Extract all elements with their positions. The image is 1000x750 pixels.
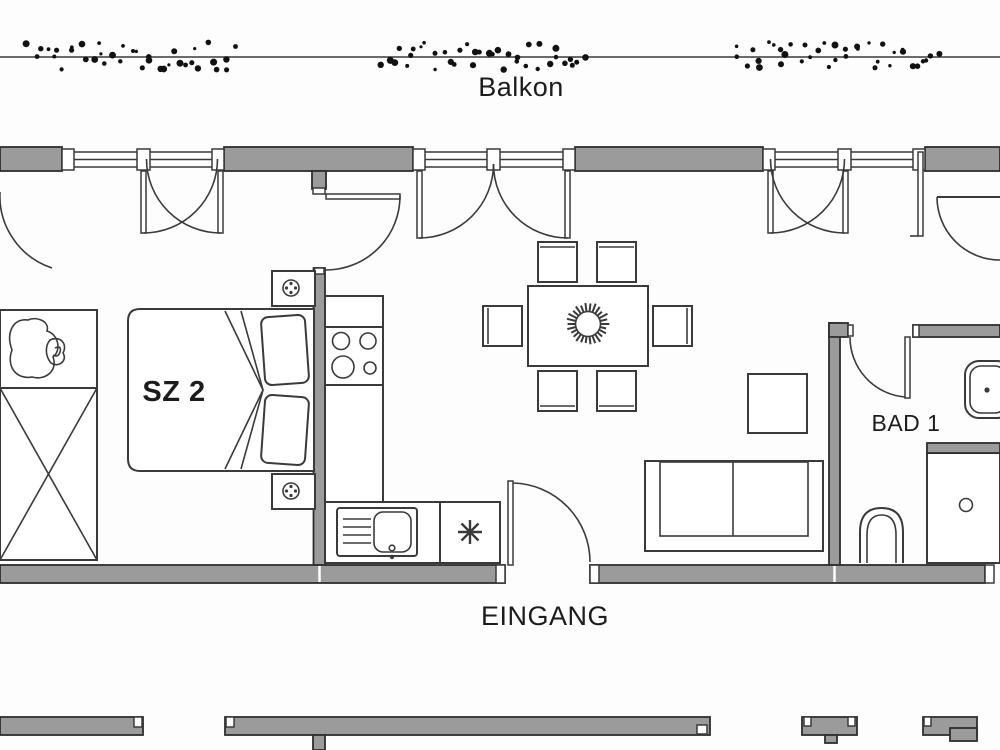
bathroom-door	[850, 337, 910, 398]
bathroom-top-wall	[913, 325, 1000, 337]
window-band-bedroom	[62, 149, 224, 170]
cooktop-icon	[325, 327, 383, 385]
floor-plan-drawing: Balkon SZ 2 BAD 1 EINGANG	[0, 0, 1000, 750]
sofa	[645, 461, 823, 551]
balcony-door-living	[768, 159, 848, 233]
nightstand-top	[272, 271, 315, 306]
wardrobe	[0, 388, 97, 560]
balcony-door-left-arc	[0, 192, 52, 268]
entrance-door	[508, 481, 590, 565]
toilet-icon	[860, 508, 903, 563]
interior-wall-kitchen	[314, 268, 326, 565]
floor-plan-canvas: Balkon SZ 2 BAD 1 EINGANG	[0, 0, 1000, 750]
side-table	[748, 374, 807, 433]
interior-wall-bathroom	[829, 323, 853, 565]
bedroom-door	[326, 194, 400, 270]
dining-table	[528, 286, 648, 366]
plant-table	[0, 310, 97, 388]
label-bathroom-1: BAD 1	[872, 410, 941, 436]
door-right-room	[937, 197, 1000, 260]
kitchen-sink-icon	[337, 508, 417, 559]
shower-icon	[927, 443, 1000, 563]
label-entrance: EINGANG	[481, 601, 609, 631]
label-balcony: Balkon	[478, 72, 564, 102]
refrigerator	[440, 502, 500, 563]
exterior-wall-bottom	[0, 565, 994, 583]
pillow-icon	[261, 315, 310, 386]
freezer-star-icon	[458, 520, 482, 544]
pillow-icon	[261, 395, 310, 466]
balcony-door-dining	[417, 164, 570, 238]
corridor-walls	[0, 717, 977, 750]
balcony-door-bedroom	[141, 159, 223, 233]
label-bedroom-2: SZ 2	[142, 376, 205, 408]
nightstand-bottom	[272, 474, 315, 509]
washbasin-icon	[965, 361, 1000, 418]
